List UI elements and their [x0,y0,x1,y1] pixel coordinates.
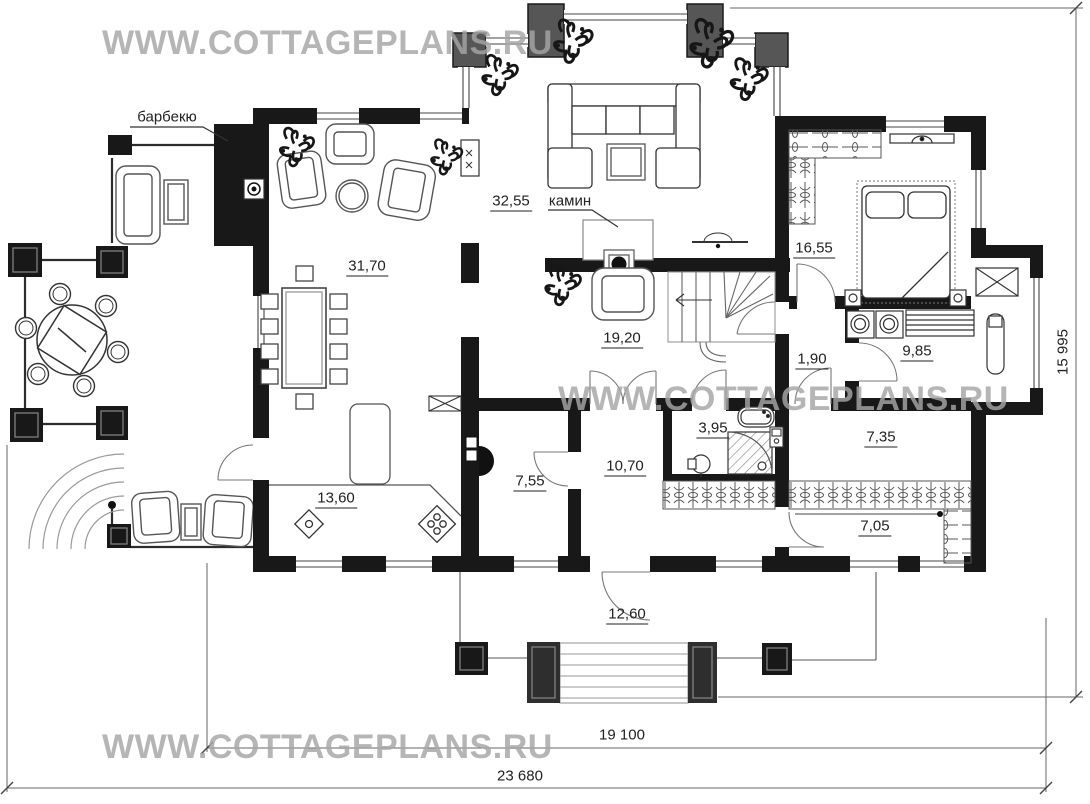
room-area-label-hall: 19,20 [601,330,643,349]
door-hall-wing [737,302,775,334]
window [317,108,359,124]
coffee-table [607,144,645,180]
vent-shaft [461,140,479,176]
door-terrace [218,445,253,480]
dimension-width-total: 23 680 [497,768,543,785]
shaft-box [976,268,1018,296]
watermark-middle: WWW.COTTAGEPLANS.RU [558,380,1009,419]
window [420,108,462,124]
wardrobe-rail-side [789,158,815,224]
dining-table-set [261,266,347,409]
cooktop [419,506,456,543]
terrace-round-table [16,284,129,397]
room-area-label-kitchen: 13,60 [315,490,357,509]
porch-columns [455,642,792,703]
window [564,10,687,24]
fireplace-label: камин [549,193,591,210]
porch-steps [560,643,688,703]
wardrobe-bands [663,481,971,563]
bed [862,186,950,298]
window [716,556,762,572]
terrace-sofa [116,166,160,244]
barbecue-label: барбекю [137,109,197,126]
door-wardrobe [789,512,824,547]
window [458,67,474,108]
window [1030,278,1043,388]
stair-direction-arrow [676,294,712,306]
room-area-label-bedroom: 16,55 [793,240,835,259]
door-bathroom [859,343,897,381]
room-area-label-porch: 12,60 [606,606,648,625]
bench [906,310,974,336]
dimension-height-total: 15 995 [1055,329,1072,375]
room-area-label-wc-shower: 3,95 [696,420,729,439]
wardrobe-rail-top [789,130,881,158]
room-area-label-wardrobe: 7,05 [858,518,891,537]
hall-armchair [592,268,654,320]
kitchen-island [350,404,390,484]
window [296,556,342,572]
room-area-label-dining-lounge: 31,70 [346,258,388,277]
room-area-label-corridor: 1,90 [795,351,828,370]
room-area-label-pantry: 7,35 [864,429,897,448]
room-area-label-boiler-room: 7,55 [513,473,546,492]
room-area-label-entrance-hall: 10,70 [604,458,646,477]
dresser [890,134,954,143]
shaft-x-box [429,396,461,411]
room-area-label-living-room: 32,55 [490,193,532,212]
window [971,170,986,228]
floor-plan-page: WWW.COTTAGEPLANS.RU WWW.COTTAGEPLANS.RU … [0,0,1090,804]
shower [728,432,772,474]
terrace-side-table [164,180,188,224]
watermark-top: WWW.COTTAGEPLANS.RU [102,24,553,63]
staircase [668,272,775,362]
ironing-board [987,314,1004,374]
room-area-label-bathroom: 9,85 [900,343,933,362]
sink [770,427,783,447]
window [514,556,558,572]
window [850,556,898,572]
window [769,67,785,116]
toilet [688,455,710,477]
terrace-armchair-pair [131,491,254,547]
armchair-group [276,124,437,222]
window [886,116,944,132]
window [386,556,432,572]
dimension-width-inner: 19 100 [599,727,645,744]
kitchen-furniture [269,404,461,542]
kitchen-sink [295,510,323,538]
flue-box [244,179,264,199]
watermark-bottom: WWW.COTTAGEPLANS.RU [102,728,553,767]
porch [455,572,876,703]
tv-console [692,233,748,248]
